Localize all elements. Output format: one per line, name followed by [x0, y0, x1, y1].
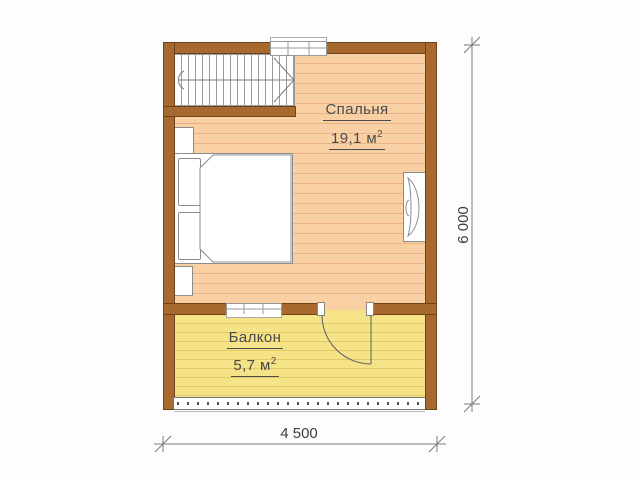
wall-staircase	[163, 106, 296, 117]
staircase	[174, 54, 295, 106]
railing-outer-line	[174, 411, 425, 412]
wall-balcony-divider	[163, 303, 437, 315]
balcony-door-opening	[324, 303, 367, 315]
window-divider-sill	[226, 314, 282, 318]
right-wall-window	[403, 172, 426, 242]
room-area-balcony-text: 5,7 м2	[231, 354, 278, 377]
wall-right	[425, 42, 437, 410]
dimension-height-label: 6 000	[456, 185, 472, 265]
nightstand-lower	[174, 266, 193, 296]
room-label-bedroom-text: Спальня	[323, 102, 390, 121]
window-top	[270, 41, 327, 56]
room-area-bedroom-text: 19,1 м2	[329, 127, 385, 150]
balcony-railing	[174, 397, 425, 410]
floor-plan-canvas: Спальня 19,1 м2 Балкон 5,7 м2 4 500 6 00…	[0, 0, 640, 480]
room-label-balcony: Балкон	[195, 330, 315, 349]
door-jamb-right	[366, 302, 374, 316]
dimension-width-label: 4 500	[259, 426, 339, 442]
room-label-balcony-text: Балкон	[227, 330, 284, 349]
door-jamb-left	[317, 302, 325, 316]
railing-balusters	[177, 402, 422, 405]
wall-left	[163, 42, 175, 410]
room-label-bedroom: Спальня	[297, 102, 417, 121]
room-area-bedroom: 19,1 м2	[297, 127, 417, 150]
pillow	[178, 158, 201, 206]
room-area-balcony: 5,7 м2	[195, 354, 315, 377]
pillow	[178, 212, 201, 260]
